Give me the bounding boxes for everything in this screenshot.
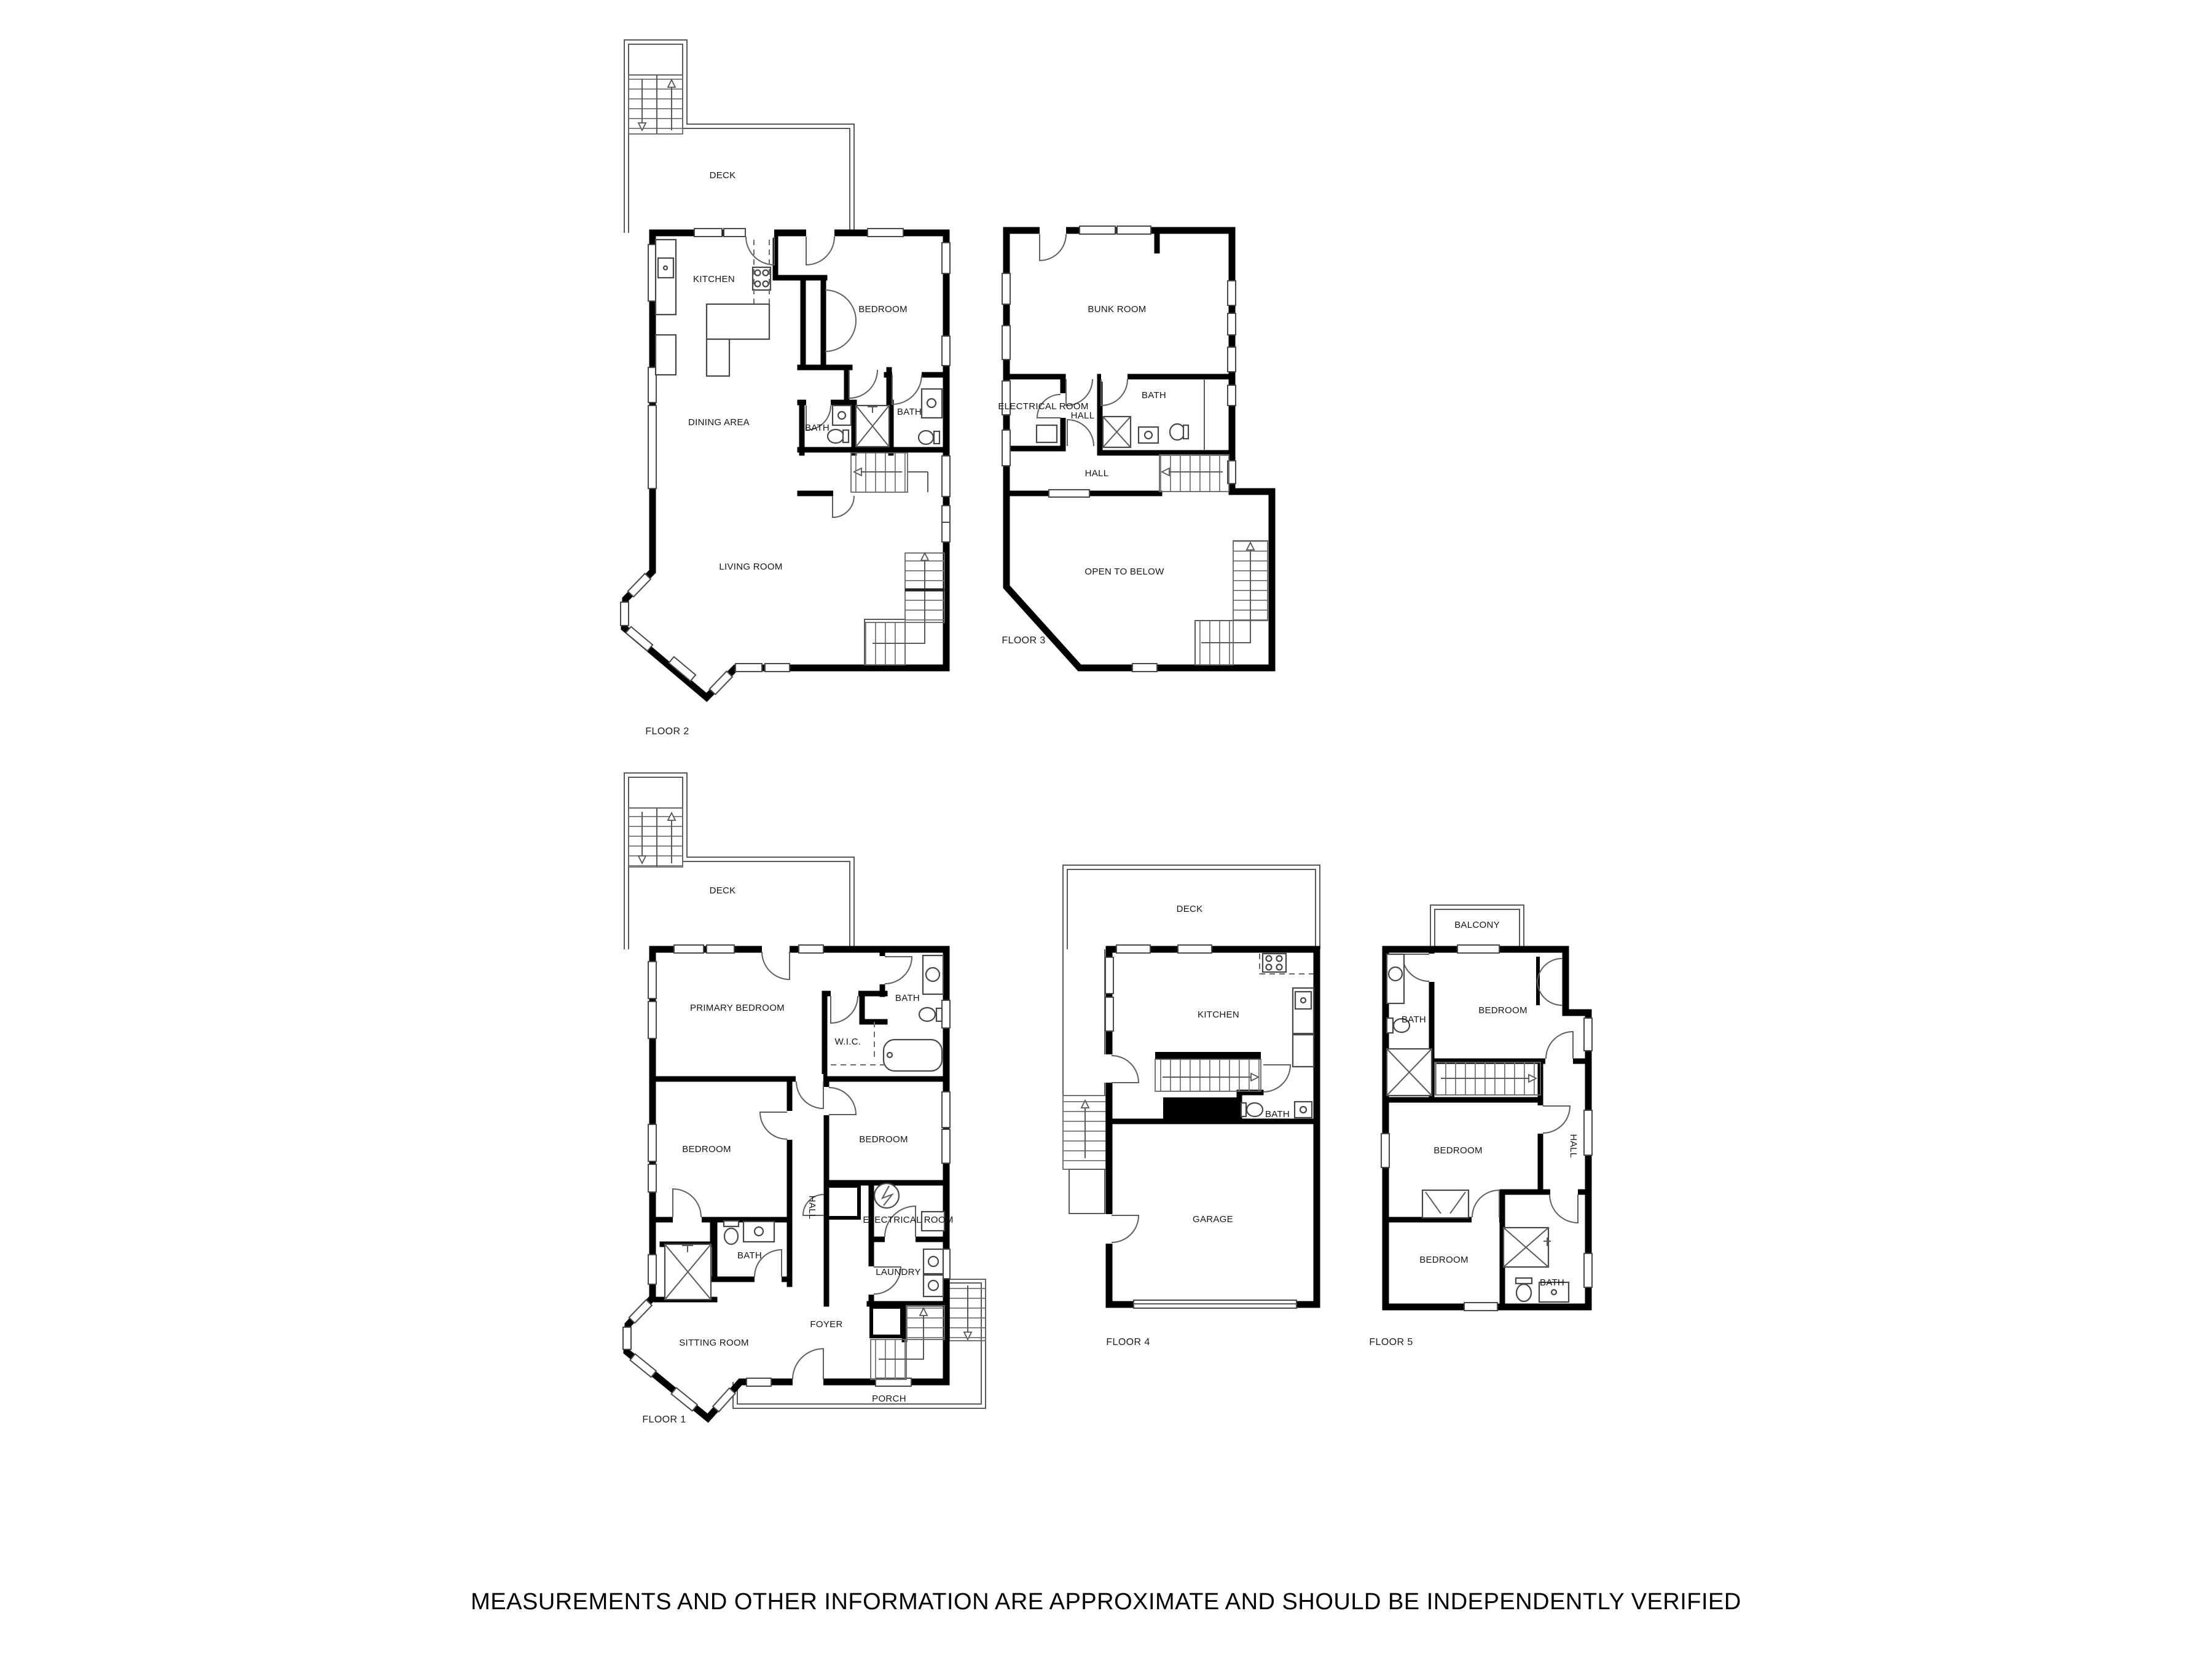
room-label-bath: BATH: [1402, 1014, 1426, 1025]
room-label-bunk-room: BUNK ROOM: [1088, 304, 1146, 315]
room-label-hall: HALL: [807, 1196, 817, 1220]
floor2-label: FLOOR 2: [645, 726, 689, 737]
floor5-stairs: [1435, 1062, 1540, 1095]
floor4-exterior-walls: [1109, 949, 1317, 1304]
room-label-bath: BATH: [1142, 390, 1166, 401]
room-label-bath: BATH: [805, 423, 829, 433]
room-label-wic: W.I.C.: [835, 1037, 861, 1047]
room-label-bedroom: BEDROOM: [682, 1144, 731, 1155]
floor4-deck: [1063, 865, 1320, 1214]
room-label-kitchen: KITCHEN: [693, 274, 735, 284]
floor3-labels: BUNK ROOM ELECTRICAL ROOM HALL BATH HALL…: [998, 304, 1166, 646]
floorplan-canvas: DECK KITCHEN BEDROOM DINING AREA BATH BA…: [0, 0, 2212, 1659]
floor5-label: FLOOR 5: [1369, 1337, 1413, 1347]
room-label-electrical-room: ELECTRICAL ROOM: [863, 1215, 953, 1225]
room-label-primary-bedroom: PRIMARY BEDROOM: [690, 1003, 785, 1013]
room-label-hall: HALL: [1085, 468, 1109, 479]
room-label-deck: DECK: [710, 885, 736, 896]
floor3-stairs: [1159, 455, 1268, 665]
room-label-bath: BATH: [1540, 1277, 1564, 1288]
room-label-foyer: FOYER: [810, 1319, 842, 1330]
floor1-plan: DECK PRIMARY BEDROOM W.I.C. BATH BEDROOM…: [623, 773, 986, 1425]
room-label-hall: HALL: [1568, 1134, 1579, 1158]
floor3-plan: BUNK ROOM ELECTRICAL ROOM HALL BATH HALL…: [998, 226, 1272, 672]
room-label-sitting-room: SITTING ROOM: [679, 1338, 749, 1348]
room-label-open-to-below: OPEN TO BELOW: [1084, 567, 1164, 577]
room-label-balcony: BALCONY: [1454, 920, 1500, 930]
room-label-bedroom: BEDROOM: [1478, 1005, 1528, 1016]
room-label-bedroom: BEDROOM: [1433, 1145, 1483, 1156]
floor4-label: FLOOR 4: [1106, 1337, 1150, 1347]
floor3-label: FLOOR 3: [1002, 635, 1045, 646]
room-label-bedroom: BEDROOM: [859, 1134, 908, 1145]
room-label-deck: DECK: [1177, 904, 1203, 914]
floor1-label: FLOOR 1: [642, 1414, 686, 1425]
floor5-plan: BALCONY BATH BEDROOM BEDROOM HALL BEDROO…: [1369, 905, 1592, 1347]
floor4-windows: [1105, 945, 1296, 1308]
room-label-garage: GARAGE: [1193, 1214, 1233, 1225]
room-label-porch: PORCH: [872, 1394, 906, 1404]
room-label-laundry: LAUNDRY: [876, 1267, 921, 1277]
floor2-stairs: [851, 453, 944, 665]
floor1-doors: [673, 952, 916, 1379]
floor1-deck: [624, 773, 854, 949]
room-label-bath: BATH: [737, 1250, 762, 1261]
room-label-bath: BATH: [895, 993, 920, 1003]
room-label-bath: BATH: [1265, 1109, 1290, 1120]
room-label-bath: BATH: [897, 407, 922, 417]
room-label-living-room: LIVING ROOM: [719, 562, 782, 572]
floor4-plan: DECK KITCHEN BATH GARAGE FLOOR 4: [1063, 865, 1320, 1347]
room-label-deck: DECK: [710, 170, 736, 181]
floor4-stairs: [1155, 1059, 1261, 1091]
room-label-hall: HALL: [1071, 410, 1095, 421]
floor2-deck: [624, 40, 854, 233]
room-label-kitchen: KITCHEN: [1198, 1010, 1239, 1020]
disclaimer-text: MEASUREMENTS AND OTHER INFORMATION ARE A…: [0, 1589, 2212, 1615]
floor2-plan: DECK KITCHEN BEDROOM DINING AREA BATH BA…: [621, 40, 950, 737]
floor1-stairs: [871, 1306, 944, 1379]
floorplan-page: DECK KITCHEN BEDROOM DINING AREA BATH BA…: [0, 0, 2212, 1659]
floor3-interior-walls: [1006, 230, 1232, 493]
room-label-dining-area: DINING AREA: [688, 417, 750, 428]
floor5-windows: [1381, 945, 1592, 1311]
room-label-bedroom: BEDROOM: [858, 304, 908, 315]
room-label-bedroom: BEDROOM: [1419, 1255, 1469, 1265]
